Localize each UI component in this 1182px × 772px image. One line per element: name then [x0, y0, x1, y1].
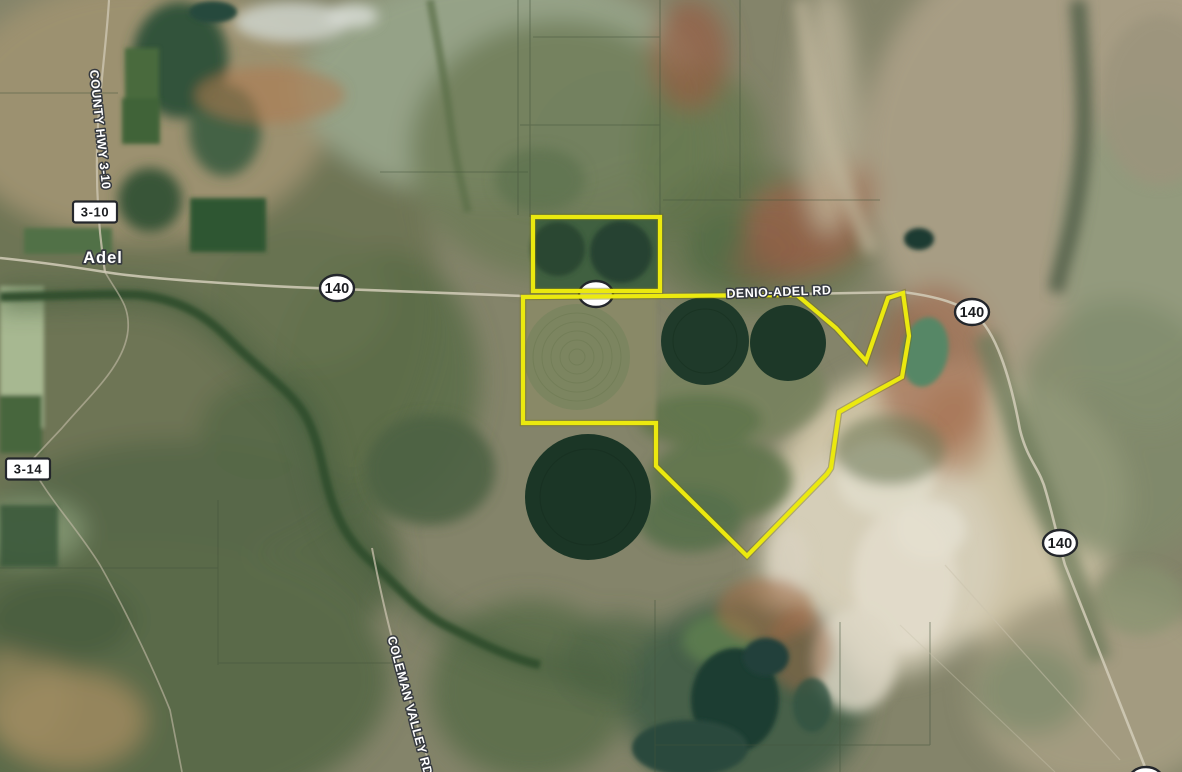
wetland-pond	[743, 638, 789, 676]
irrigation-pivot-circle	[750, 305, 826, 381]
irrigation-pivot-circle	[590, 221, 652, 283]
route-shield-label: 3-10	[81, 205, 109, 220]
irrigation-pivot-circle	[661, 297, 749, 385]
place-label-adel[interactable]: Adel	[83, 249, 123, 267]
irrigation-pivot-circle	[525, 434, 651, 560]
route-shield-label: 140	[960, 305, 985, 321]
map-canvas[interactable]: 1401401403-103-14COUNTY HWY 3-10DENIO-AD…	[0, 0, 1182, 772]
wetland-pond	[793, 678, 831, 732]
route-shield-label: 140	[325, 281, 350, 297]
route-shield-oval: 140	[1043, 530, 1077, 556]
route-shield-rect: 3-14	[6, 459, 50, 480]
route-shield-label: 140	[1048, 536, 1073, 552]
route-shield-oval: 140	[320, 275, 354, 301]
route-shield-oval: 140	[955, 299, 989, 325]
route-shield-rect: 3-10	[73, 202, 117, 223]
irrigation-pivot-circle-faint	[524, 304, 630, 410]
pond	[189, 1, 237, 23]
irrigation-pivot-circle	[531, 222, 585, 276]
route-shield-label: 3-14	[14, 462, 43, 477]
satellite-terrain	[0, 0, 1182, 772]
pond	[904, 228, 934, 250]
